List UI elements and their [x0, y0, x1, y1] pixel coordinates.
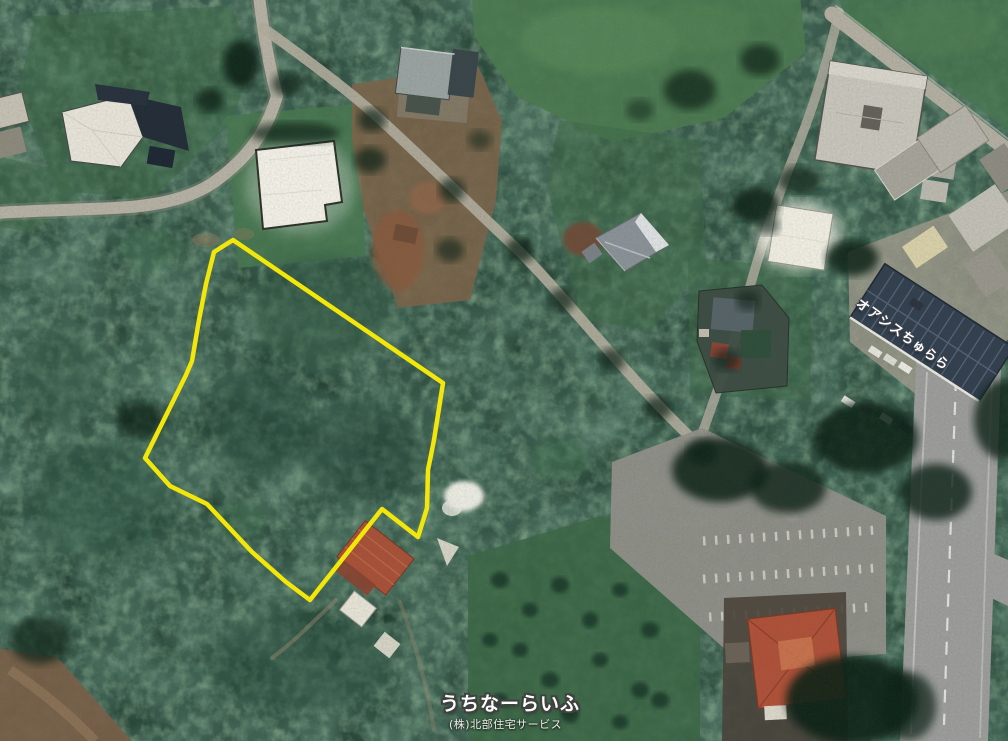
aerial-listing-image: オアシスちゅらら うちなーらいふ (株)北部住宅サービス [0, 0, 1008, 741]
satellite-image [0, 0, 1008, 741]
photo-grain [0, 0, 1008, 741]
watermark-site-name: うちなーらいふ [440, 689, 580, 716]
watermark-company-name: (株)北部住宅サービス [449, 716, 562, 732]
